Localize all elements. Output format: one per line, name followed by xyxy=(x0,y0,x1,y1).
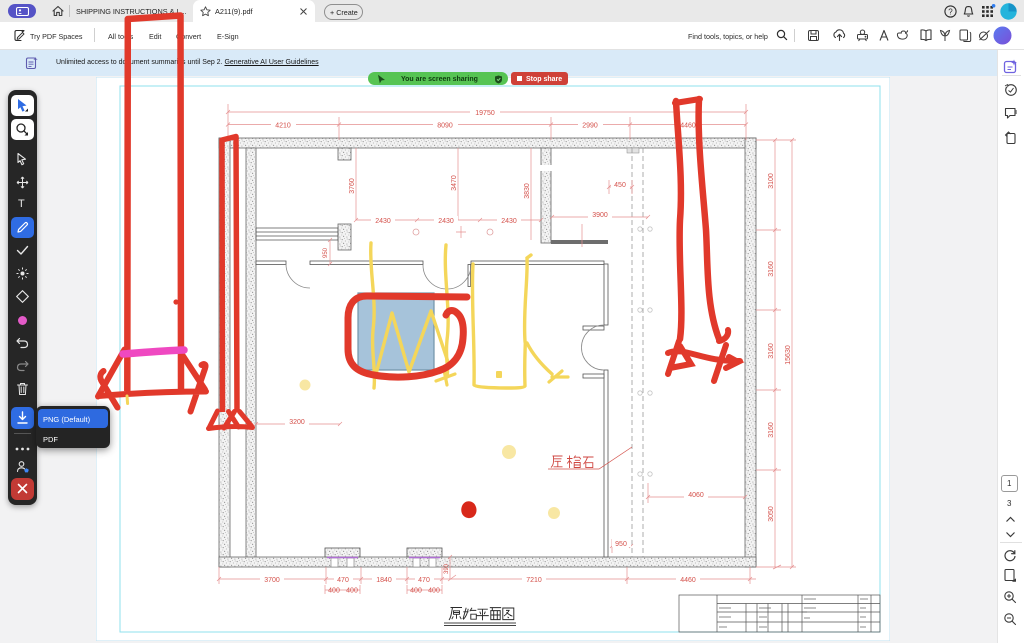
svg-text:2430: 2430 xyxy=(501,218,517,225)
svg-text:8090: 8090 xyxy=(437,123,453,130)
svg-text:3160: 3160 xyxy=(768,343,775,359)
svg-text:3160: 3160 xyxy=(768,422,775,438)
svg-text:450: 450 xyxy=(614,182,626,189)
svg-text:3900: 3900 xyxy=(592,212,608,219)
svg-text:19750: 19750 xyxy=(475,110,495,117)
svg-text:950: 950 xyxy=(323,247,329,258)
svg-text:4460: 4460 xyxy=(680,577,696,584)
svg-text:3700: 3700 xyxy=(264,577,280,584)
svg-text:4210: 4210 xyxy=(275,123,291,130)
svg-text:1840: 1840 xyxy=(376,577,392,584)
svg-text:3470: 3470 xyxy=(451,175,458,191)
svg-text:3760: 3760 xyxy=(349,178,356,194)
svg-text:400: 400 xyxy=(346,588,358,595)
svg-text:4060: 4060 xyxy=(688,492,704,499)
svg-text:470: 470 xyxy=(337,577,349,584)
svg-text:3050: 3050 xyxy=(768,506,775,522)
svg-text:2430: 2430 xyxy=(375,218,391,225)
svg-text:390: 390 xyxy=(444,563,450,574)
svg-text:400: 400 xyxy=(428,588,440,595)
svg-text:950: 950 xyxy=(615,541,627,548)
svg-text:3100: 3100 xyxy=(768,173,775,189)
svg-text:2430: 2430 xyxy=(438,218,454,225)
svg-text:3830: 3830 xyxy=(524,183,531,199)
svg-text:400: 400 xyxy=(328,588,340,595)
svg-text:4460: 4460 xyxy=(680,123,696,130)
svg-text:15630: 15630 xyxy=(785,345,792,365)
svg-text:?: ? xyxy=(948,7,953,16)
svg-text:470: 470 xyxy=(418,577,430,584)
svg-text:7210: 7210 xyxy=(526,577,542,584)
svg-text:3200: 3200 xyxy=(289,419,305,426)
svg-text:2990: 2990 xyxy=(582,123,598,130)
svg-text:400: 400 xyxy=(410,588,422,595)
svg-text:3160: 3160 xyxy=(768,261,775,277)
